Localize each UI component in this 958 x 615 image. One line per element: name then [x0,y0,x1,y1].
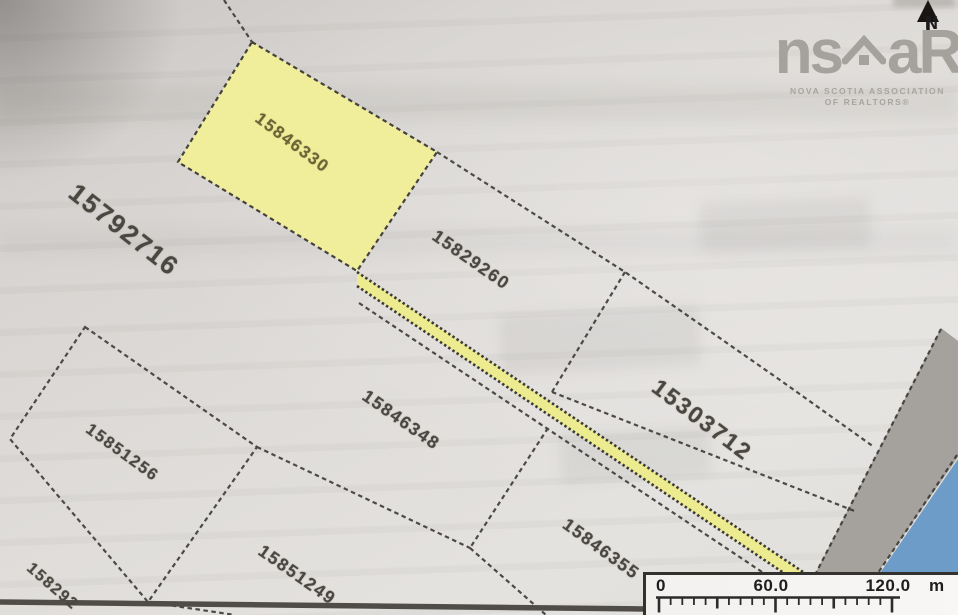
boundary-line [437,152,874,447]
parcel-map-scan: 15846330 15792716 15829260 15303712 1584… [0,0,958,615]
north-arrow: N [905,0,951,58]
logo-subtitle-2: OF REALTORS® [775,97,958,107]
scale-label-0: 0 [656,576,666,596]
boundary-line [552,272,625,392]
scale-ruler [652,596,904,615]
boundary-line [470,428,548,548]
logo-subtitle-1: NOVA SCOTIA ASSOCIATION [775,86,958,96]
north-label: N [925,13,938,34]
scale-label-120: 120.0 [865,576,910,596]
scale-label-60: 60.0 [753,576,788,596]
logo-text-left: ns [775,26,841,80]
scale-bar: 0 60.0 120.0 m [643,572,958,615]
boundary-line [257,447,470,548]
boundary-line [224,0,252,42]
scale-unit: m [929,576,945,596]
house-roof-icon [842,24,886,78]
